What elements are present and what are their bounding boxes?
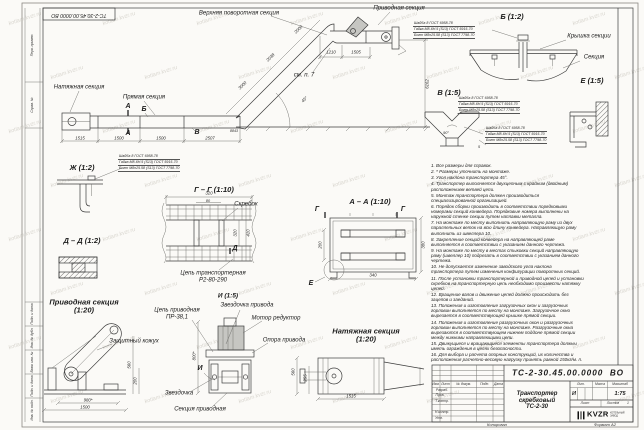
dimension-label: 1505 [351,50,361,55]
kvzr-logo-subtext: КОТЕЛЬНЫЙ ЗАВОД [610,412,624,417]
section-marker-d: Д [232,245,237,253]
note-item: 2. * Размеры уточнить на монтаже. [431,169,584,174]
margin-cell-label: Справ. № [31,97,35,112]
label-motor-reducer: Мотор редуктор [252,316,301,323]
label-conveyor-chain: Цепь транспортерная Р2-80-290 [180,270,245,283]
scale-value: 1:75 [614,391,625,397]
dimension-label: 5 [478,145,480,149]
label-upper-turn-section: Верхняя поворотная секция [199,11,279,18]
fastener-callout: Шайба 8 ГОСТ 6958-78Гайка М8-6Н.5 (S13) … [485,126,547,144]
dimension-label: 560 [292,368,297,375]
margin-cell-label: Инв. № дубл. [31,328,35,349]
dimension-label: 200 [134,377,139,384]
view-title-e: Е (1:5) [581,77,604,85]
dimension-label: 800* [193,352,198,361]
label-drive-sprocket: Звездочка привода [221,303,274,310]
technical-notes: 1. Все размеры для справок.2. * Размеры … [431,163,584,364]
col-header-list: Лист [441,383,450,387]
dimension-label: 45° [301,96,309,104]
dimension-label: 340 [369,274,376,279]
dimension-label: 2038 [266,53,276,63]
dimension-label: 255 [304,374,309,381]
dimension-label: 200 [319,241,324,248]
note-item: 8. Закрепление секций конвейера на напра… [431,237,584,247]
col-header-massa: Масса [595,383,605,387]
note-item: 5. Монтаж транспортера должен производит… [431,193,584,203]
margin-cell-label: Подп. и дата [31,303,35,324]
label-see-note-7: см. п. 7 [294,73,314,80]
dimension-label: 320 [205,192,212,197]
label-scraper: Скребок [234,202,257,209]
dimension-label: 80 [206,198,210,202]
dimension-label: 2000 [294,25,304,35]
row-nkontr: Н.контр. [435,411,449,415]
note-item: 14. Положения и изготовление разгрузочны… [431,320,584,341]
view-title-a-a: А – А (1:10) [349,198,390,206]
fastener-callout: Шайба 8 ГОСТ 6958-78Гайка М8-6Н.5 (S13) … [118,154,180,172]
label-drive-chain: Цепь приводная ПР-38,1 [154,307,199,320]
note-item: 10. Не допускается изменение заводского … [431,264,584,274]
label-drive-section-bottom: Секция приводная [174,407,226,414]
dimension-label: 1500 [80,405,90,410]
dimension-label: 560 [128,361,133,368]
label-section: Секция [584,55,604,62]
detail-marker-b: Б [142,106,147,114]
margin-cell-label: Взам. инв. № [31,352,35,373]
dimension-label: 1515 [75,136,85,141]
row-razrab: Разраб. [436,389,448,393]
dimension-label: 380 [422,241,427,248]
detail-marker-e: Е [309,280,314,288]
col-header-doc: № докум. [456,383,471,387]
label-drive-support: Опора привода [263,338,306,345]
dimension-label: 1500 [114,136,124,141]
note-item: 1. Все размеры для справок. [431,163,584,168]
dimension-label: 1515 [346,394,356,399]
dimension-label: 1210 [326,50,336,55]
note-item: 3. Угол наклона транспортера 45°. [431,175,584,180]
view-title-b: Б (1:2) [500,13,523,21]
margin-cell-label: Перв. примен. [31,34,35,57]
col-header-podp: Подп. [480,383,489,387]
copied-note: Копировал [487,423,507,427]
dimension-label: 8843 [230,129,238,133]
note-item: 13. Положения и изготовление загрузочных… [431,303,584,318]
fastener-callout-line: Болт М8х25.58 (S13) ГОСТ 7798-70 [118,166,180,172]
note-item: 11. После установки транспортерной и при… [431,276,584,291]
col-header-data: Дата [494,383,503,387]
col-header-lit: Лит. [577,383,585,387]
dimension-label: 90° [443,131,449,135]
title-block: ТС-2-30.45.00.0000 ВО Транспортер скребк… [432,365,633,422]
dimension-label: 410 [247,229,252,236]
litera-value: И [572,391,576,397]
dimension-label: 3000 [238,81,248,91]
label-section-cover: Крышка секции [567,34,610,41]
label-drive-section-top: Приводная секция [373,6,424,13]
section-marker-g: Г [401,206,405,214]
note-item: 4. Транспортер выполняется двухцепным с … [431,181,584,191]
section-marker-a: А [125,103,130,111]
fastener-callout-line: Болт М8х25.58 (S13) ГОСТ 7798-70 [413,33,475,39]
note-item: 16. Для выбора и расчета опорных констру… [431,352,584,362]
col-header-scale: Масштаб [612,383,628,387]
view-marker-i: И [197,365,202,373]
dimension-label: 980* [84,398,93,403]
note-item: 15. Движущиеся и вращающиеся элементы тр… [431,341,584,351]
col-header-izm: Изм. [432,383,439,387]
view-title-tension-section: Натяжная секция (1:20) [332,328,399,345]
margin-cell-label: Подп. и дата [31,375,35,396]
kvzr-logo: KVZR КОТЕЛЬНЫЙ ЗАВОД [577,397,624,430]
title-product-name: Транспортер скребковый ТС-2-30 [517,391,558,411]
fastener-callout: Шайба 8 ГОСТ 6958-78Гайка М8-6Н.5 (S13) … [413,21,475,39]
drawing-sheet: kotlam.kvzr.rukotlam.kvzr.rukotlam.kvzr.… [0,0,644,430]
note-item: 9. На монтаже по месту в местах стыковки… [431,248,584,263]
view-title-d-d: Д – Д (1:2) [63,237,100,245]
dimension-label: 2507 [205,136,215,141]
dimension-label: 1500 [156,136,166,141]
view-title-i: И (1:5) [218,292,238,299]
row-tkontr: Т.контр. [435,400,449,404]
row-utv: Утв. [435,417,443,421]
fastener-callout-line: Болт М8х25.58 (S13) ГОСТ 7798-70 [485,138,547,144]
view-title-g-g: Г – Г (1:10) [194,186,234,194]
view-title-drive-section: Приводная секция (1:20) [49,299,118,316]
margin-cell-label: Инв. № подл. [31,399,35,420]
label-straight-section: Прямая секция [123,95,165,102]
note-item: 6. Порядок сборки производить в соответс… [431,204,584,219]
dimension-label: 320 [234,229,239,236]
label-protective-cover: Защитный кожух [109,339,158,346]
section-marker-g: Г [315,206,319,214]
fastener-callout: Шайба 8 ГОСТ 6958-78Гайка М8-6Н.5 (S13) … [458,96,520,114]
section-marker-a: А [125,130,130,138]
doc-number-stamp: ТС-2-30.45.00.0000 ВО [51,11,106,17]
sheets-value: 1 [627,402,629,406]
kvzr-logo-icon [577,411,585,419]
label-sprocket: Звездочка [165,391,193,398]
row-prov: Пров. [436,394,445,398]
title-doc-number: ТС-2-30.45.00.0000 ВО [512,368,624,377]
note-item: 12. Вращение валов и движение цепей долж… [431,292,584,302]
note-item: 7. На монтаже по месту выполнить направл… [431,220,584,235]
label-tension-section-main: Натяжная секция [54,85,105,92]
fastener-callout-line: Болт М8х25.58 (S13) ГОСТ 7798-70 [458,108,520,114]
view-title-zh: Ж (1:2) [70,164,95,172]
dimension-label: 6162 [426,79,431,89]
detail-marker-v: В [194,129,199,137]
kvzr-logo-text: KVZR [587,411,609,419]
